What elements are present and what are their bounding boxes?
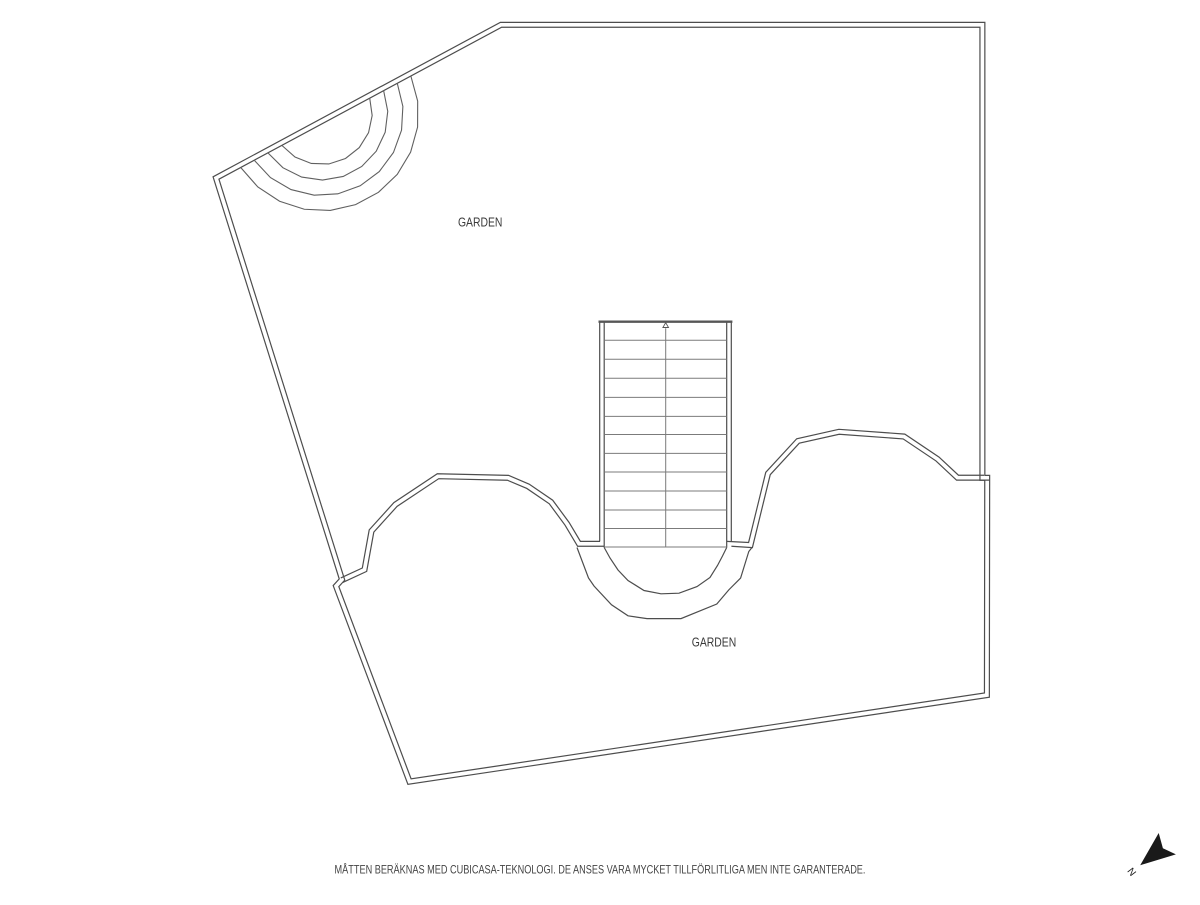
svg-text:MÅTTEN BERÄKNAS MED CUBICASA-T: MÅTTEN BERÄKNAS MED CUBICASA-TEKNOLOGI. … [335,862,866,877]
svg-text:GARDEN: GARDEN [692,635,736,649]
svg-text:GARDEN: GARDEN [458,216,502,230]
